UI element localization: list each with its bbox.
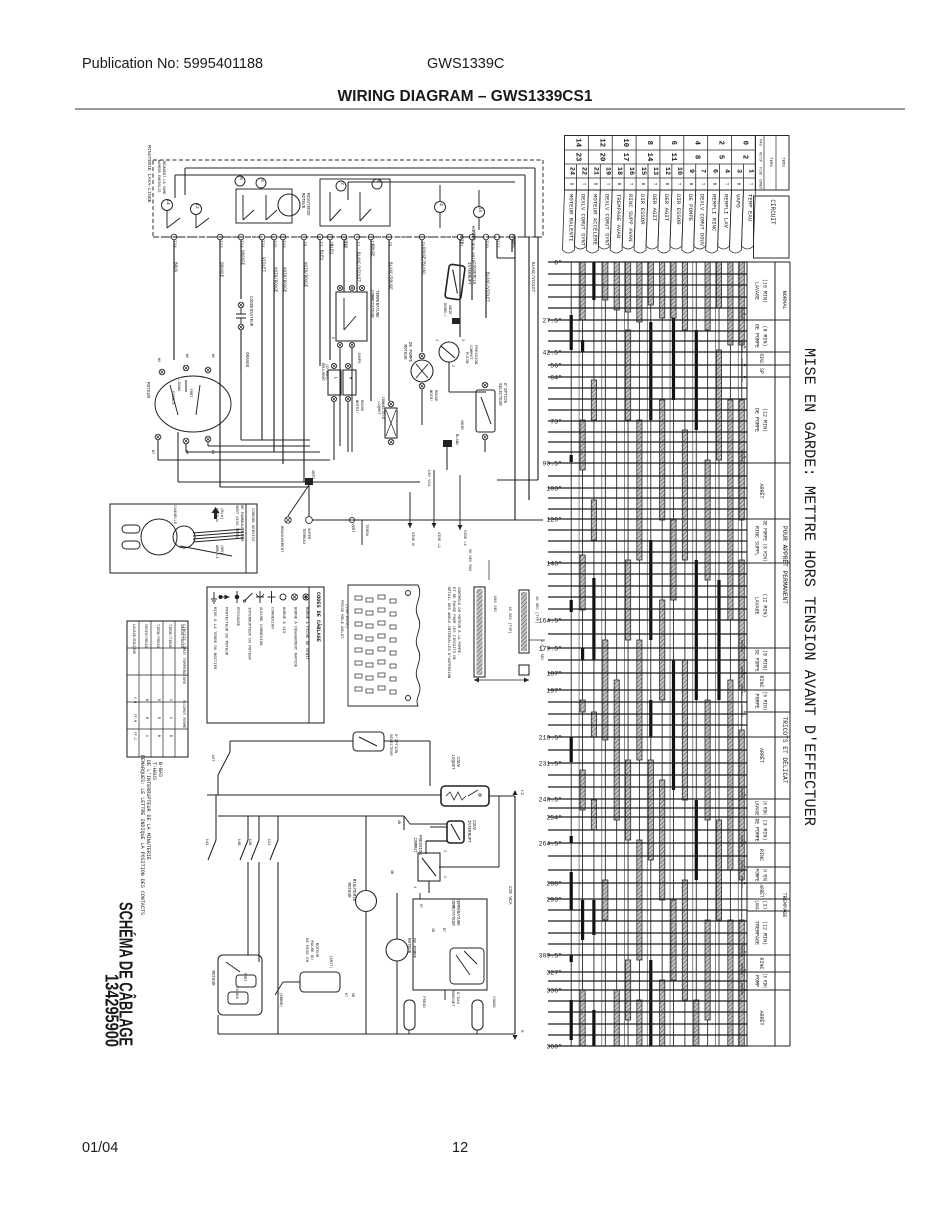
svg-text:DER AGIT: DER AGIT: [651, 194, 658, 222]
svg-text:45 SEC (TYP): 45 SEC (TYP): [507, 606, 512, 633]
svg-text:TREMPAGE: TREMPAGE: [754, 921, 760, 945]
svg-text:18: 18: [615, 167, 623, 175]
svg-text:73″: 73″: [550, 419, 562, 426]
svg-text:12B: 12B: [247, 839, 251, 847]
svg-text:309.5″: 309.5″: [539, 953, 563, 960]
svg-text:W9: W9: [156, 358, 160, 362]
svg-text:H: H: [348, 377, 354, 380]
svg-text:MOTEUR: MOTEUR: [314, 943, 318, 958]
svg-text:12: 12: [452, 1140, 468, 1156]
svg-text:LOQUET: LOQUET: [376, 401, 380, 415]
svg-text:CONNEXION: CONNEXION: [270, 607, 274, 629]
svg-text:JUMPS: JUMPS: [356, 352, 360, 364]
svg-text:231.5″: 231.5″: [539, 761, 563, 768]
svg-text:TERRA: TERRA: [364, 524, 368, 537]
svg-text:MOTEUR ACCÉLÉRÉ: MOTEUR ACCÉLÉRÉ: [591, 194, 598, 246]
svg-text:CORDON SERVICE: CORDON SERVICE: [250, 508, 254, 542]
svg-text:NOIR: NOIR: [471, 230, 475, 241]
svg-text:VIDE N: VIDE N: [410, 532, 414, 546]
svg-text:VIOLET: VIOLET: [261, 257, 265, 273]
svg-text:L: L: [333, 377, 339, 380]
svg-text:GWS1339C: GWS1339C: [427, 56, 504, 72]
svg-text:WIRING DIAGRAM – GWS1339CS1: WIRING DIAGRAM – GWS1339CS1: [338, 88, 593, 105]
svg-text:CONDENSATEUR: CONDENSATEUR: [248, 296, 252, 327]
svg-text:JNDANENT LA GAME: JNDANENT LA GAME: [161, 160, 165, 195]
svg-text:ARRÊT: ARRÊT: [758, 885, 765, 898]
svg-text:121: 121: [266, 839, 270, 847]
svg-text:REMPLI LAV: REMPLI LAV: [723, 194, 730, 229]
svg-text:P: P: [744, 363, 747, 369]
svg-text:DE PANNEAU SUPER: DE PANNEAU SUPER: [239, 505, 243, 542]
svg-text:ORANGE: ORANGE: [244, 352, 248, 368]
svg-text:4: 4: [723, 169, 731, 173]
svg-text:REMARQUES: LE LETTRE INDIQUE L: REMARQUES: LE LETTRE INDIQUE LA POSITION…: [139, 755, 145, 915]
svg-text:CONTRÔLE DU MOTEUR À LA POMPE.: CONTRÔLE DU MOTEUR À LA POMPE.: [456, 587, 461, 655]
svg-text:DOREL/: DOREL/: [442, 303, 447, 317]
svg-text:PLEIN: PLEIN: [464, 352, 468, 363]
svg-text:TEMS: TEMS: [768, 157, 772, 167]
svg-text:22: 22: [579, 167, 587, 175]
svg-text:P: P: [744, 689, 747, 695]
svg-text:COMMUTATEUR: COMMUTATEUR: [369, 290, 373, 318]
svg-text:14B: 14B: [236, 839, 240, 847]
svg-text:DEXLV COMUT SYNT: DEXLV COMUT SYNT: [579, 194, 586, 247]
svg-text:P: P: [744, 968, 747, 974]
svg-text:W5: W5: [210, 354, 214, 358]
svg-text:DE POMPE (8 MIN): DE POMPE (8 MIN): [762, 521, 768, 562]
svg-text:PRESSION: PRESSION: [473, 345, 477, 365]
svg-text:CHAUD: CHAUD: [491, 996, 495, 1008]
svg-text:P: P: [744, 710, 747, 716]
svg-text:FAIBLE: FAIBLE: [234, 987, 238, 999]
svg-text:1: 1: [746, 169, 754, 173]
svg-text:POMP: POMP: [754, 975, 760, 987]
svg-text:MOTEUR: MOTEUR: [300, 193, 304, 209]
svg-text:218.5″: 218.5″: [539, 735, 563, 742]
svg-text:POUR APPRÊT PERMANENT: POUR APPRÊT PERMANENT: [781, 526, 788, 604]
svg-text:COMMUTATEUR: COMMUTATEUR: [450, 898, 454, 926]
svg-text:VAPO: VAPO: [734, 194, 741, 208]
svg-text:COMMUT: COMMUT: [468, 345, 472, 360]
svg-text:ARRÊT: ARRÊT: [758, 484, 765, 499]
svg-text:6: 6: [669, 141, 677, 145]
svg-text:NOIR/: NOIR/: [428, 390, 433, 402]
svg-text:187″: 187″: [546, 671, 562, 678]
svg-text:107: 107: [210, 755, 214, 762]
svg-text:8: 8: [238, 177, 244, 180]
svg-text:REMPLI RINC: REMPLI RINC: [711, 194, 718, 232]
svg-text:BLANC/ROUGE: BLANC/ROUGE: [388, 262, 393, 290]
svg-text:Y-H: Y-H: [132, 697, 136, 703]
svg-text:RINC SUPPL: RINC SUPPL: [754, 526, 760, 556]
svg-text:BLANC/VIOLET: BLANC/VIOLET: [485, 272, 490, 303]
svg-text:LOQUET: LOQUET: [450, 754, 454, 770]
svg-text:42.5″: 42.5″: [542, 350, 562, 357]
svg-text:1: 1: [434, 339, 438, 341]
svg-text:(15 MIN): (15 MIN): [762, 279, 768, 303]
svg-text:P: P: [744, 865, 747, 871]
svg-text:BRUN: BRUN: [173, 262, 177, 273]
svg-text:NOIR: NOIR: [343, 238, 347, 249]
svg-text:TERREAU: TERREAU: [301, 528, 305, 545]
svg-text:D: D: [156, 699, 160, 701]
svg-text:264.5″: 264.5″: [539, 841, 563, 848]
svg-text:DEXLV COMUT SYNT: DEXLV COMUT SYNT: [603, 194, 610, 247]
svg-text:ROUGE: ROUGE: [359, 400, 363, 412]
svg-text:(VUE EXTR): (VUE EXTR): [344, 604, 349, 628]
svg-text:DE POMPE: DE POMPE: [754, 408, 760, 432]
svg-text:RINC: RINC: [758, 958, 764, 970]
svg-text:TRICOTS ET DÉLICAT: TRICOTS ET DÉLICAT: [781, 717, 788, 784]
svg-text:0″: 0″: [554, 260, 562, 267]
svg-text:SP: SP: [758, 368, 764, 374]
svg-text:D'OPTION: D'OPTION: [393, 734, 398, 754]
svg-text:BT: BT: [441, 928, 445, 932]
svg-text:TIÈDE/FROID: TIÈDE/FROID: [155, 624, 160, 648]
svg-text:8: 8: [645, 141, 653, 145]
svg-text:10: 10: [675, 167, 683, 175]
svg-text:327″: 327″: [546, 970, 562, 977]
svg-text:VERT: VERT: [310, 470, 314, 480]
svg-text:4: 4: [693, 141, 701, 146]
svg-text:6: 6: [259, 179, 265, 182]
svg-text:FIXE: FIXE: [759, 167, 763, 175]
svg-text:23: 23: [573, 153, 581, 162]
svg-text:P: P: [744, 455, 747, 461]
svg-text:2B: 2B: [430, 928, 434, 932]
svg-text:P: P: [744, 988, 747, 994]
svg-text:P: P: [744, 645, 747, 651]
svg-text:179.5″: 179.5″: [539, 646, 563, 653]
svg-text:16: 16: [477, 207, 481, 213]
svg-text:120″: 120″: [546, 517, 562, 524]
svg-text:FORT: FORT: [242, 973, 246, 982]
svg-text:TREMPAGE AVAN: TREMPAGE AVAN: [615, 194, 622, 238]
svg-text:PAG: PAG: [758, 139, 762, 145]
svg-text:180 SEC: 180 SEC: [492, 596, 496, 613]
svg-text:B-BAS: B-BAS: [157, 762, 163, 777]
svg-text:120 VCA: 120 VCA: [507, 886, 513, 905]
svg-text:90.5″: 90.5″: [542, 461, 562, 468]
svg-text:DER AGIT: DER AGIT: [663, 194, 670, 222]
svg-text:ROUGE/BLANC: ROUGE/BLANC: [421, 247, 426, 275]
svg-text:(12 MIN): (12 MIN): [762, 921, 768, 945]
svg-text:NOIR: NOIR: [511, 234, 515, 245]
svg-text:BORNE À VIS: BORNE À VIS: [281, 607, 286, 634]
svg-text:PRESSION: PRESSION: [417, 835, 421, 856]
svg-text:D: D: [168, 735, 172, 737]
svg-text:MOTEUR: MOTEUR: [145, 382, 151, 399]
svg-text:BLEU: BLEU: [329, 244, 333, 255]
svg-text:(12 MIN): (12 MIN): [762, 594, 768, 618]
svg-text:20: 20: [597, 153, 605, 162]
svg-text:MISE À LA TERRE DU BOITIER: MISE À LA TERRE DU BOITIER: [212, 607, 217, 670]
svg-text:DE POMPE: DE POMPE: [407, 342, 411, 363]
svg-text:2: 2: [442, 876, 446, 878]
svg-text:(8 MIN): (8 MIN): [762, 801, 768, 816]
svg-text:TEMS: TEMS: [781, 157, 785, 167]
svg-text:FROID/FROID: FROID/FROID: [143, 624, 148, 648]
svg-text:12: 12: [194, 203, 200, 209]
svg-text:W6: W6: [184, 354, 188, 358]
svg-text:ARRÊT: ARRÊT: [758, 1011, 765, 1026]
svg-text:360″: 360″: [546, 1044, 562, 1051]
svg-text:248.5″: 248.5″: [539, 797, 563, 804]
svg-text:NORMAL: NORMAL: [781, 291, 787, 310]
svg-text:COUV: COUV: [455, 757, 459, 768]
svg-text:17: 17: [621, 153, 629, 162]
svg-text:MOTEUR: MOTEUR: [346, 882, 350, 898]
svg-text:130 VCA: 130 VCA: [426, 470, 430, 487]
svg-text:MINUTERIE: MINUTERIE: [305, 193, 309, 216]
svg-text:293″: 293″: [546, 897, 562, 904]
svg-text:30 SEC MAX: 30 SEC MAX: [467, 549, 471, 573]
svg-text:P: P: [744, 345, 747, 351]
svg-text:(12 MIN): (12 MIN): [762, 408, 768, 432]
svg-text:56″: 56″: [550, 363, 562, 370]
svg-text:134295900: 134295900: [102, 974, 122, 1047]
svg-text:COUVERCLE: COUVERCLE: [471, 262, 475, 285]
svg-text:164.5″: 164.5″: [539, 618, 563, 625]
svg-text:BLANC: BLANC: [454, 434, 458, 446]
svg-text:TEMP EAU: TEMP EAU: [746, 194, 753, 221]
svg-text:(8 MIN): (8 MIN): [762, 326, 768, 347]
svg-text:FORT: FORT: [188, 388, 192, 398]
svg-text:9: 9: [687, 169, 695, 173]
svg-text:RINC SUPP AVAN: RINC SUPP AVAN: [627, 194, 634, 242]
svg-text:(6 MIN): (6 MIN): [762, 692, 768, 711]
svg-text:SÉLECTEUR: SÉLECTEUR: [388, 734, 393, 756]
svg-text:ROBINET: ROBINET: [450, 990, 454, 1007]
svg-text:LAVAGE: LAVAGE: [754, 597, 760, 615]
svg-text:DE POMPE: DE POMPE: [754, 819, 760, 842]
svg-text:BORNE À FICHE DE VENIT: BORNE À FICHE DE VENIT: [304, 607, 309, 660]
svg-text:14: 14: [573, 138, 581, 147]
svg-text:8: 8: [693, 155, 701, 159]
svg-text:TIÈDE/TIÈDE: TIÈDE/TIÈDE: [167, 624, 172, 648]
svg-text:DE POMPE: DE POMPE: [754, 650, 760, 672]
svg-text:5: 5: [717, 155, 725, 159]
svg-text:LAVA: LAVA: [754, 901, 760, 910]
svg-text:LAVAGE: LAVAGE: [754, 801, 760, 816]
svg-text:COUV: COUV: [471, 820, 475, 831]
svg-text:24: 24: [567, 167, 575, 175]
svg-text:LOVAN: LOVAN: [176, 379, 180, 390]
svg-text:288″: 288″: [546, 881, 562, 888]
svg-text:197″: 197″: [546, 688, 562, 695]
svg-text:(6 MIN): (6 MIN): [762, 974, 768, 989]
svg-text:ROUGE: ROUGE: [370, 244, 374, 257]
svg-text:BLANC/VIOLET: BLANC/VIOLET: [530, 262, 535, 293]
svg-text:6B: 6B: [350, 993, 354, 997]
svg-text:NOIR: NOIR: [459, 234, 463, 245]
svg-text:14: 14: [165, 199, 171, 205]
svg-text:DE POMPE: DE POMPE: [754, 324, 760, 348]
svg-text:(D'EAU): (D'EAU): [324, 364, 329, 380]
svg-text:BORNE À DÉGAGEMENT RAPIDE: BORNE À DÉGAGEMENT RAPIDE: [293, 607, 298, 668]
svg-text:254″: 254″: [546, 815, 562, 822]
svg-text:12: 12: [663, 167, 671, 175]
svg-text:14: 14: [645, 153, 653, 162]
svg-text:NOIR: NOIR: [447, 305, 451, 315]
svg-text:ORANGE: ORANGE: [240, 250, 244, 266]
svg-text:21: 21: [591, 167, 599, 175]
svg-text:MOTEUR: MOTEUR: [210, 970, 214, 986]
svg-text:RINC: RINC: [758, 849, 764, 861]
svg-text:3: 3: [734, 169, 742, 173]
svg-text:D: D: [156, 717, 160, 719]
svg-text:VIDE L1: VIDE L1: [436, 532, 440, 549]
svg-text:143″: 143″: [546, 561, 562, 568]
svg-text:27.5″: 27.5″: [542, 318, 562, 325]
svg-text:BRANCHEMENT: BRANCHEMENT: [279, 526, 283, 553]
svg-text:MOTEUR RALENTI: MOTEUR RALENTI: [567, 194, 574, 242]
svg-text:P: P: [744, 881, 747, 887]
svg-text:SELECTEUR: SELECTEUR: [497, 383, 501, 406]
svg-text:MACHE DU: MACHE DU: [309, 940, 313, 960]
svg-text:NOTRI/: NOTRI/: [354, 400, 359, 414]
svg-text:16: 16: [627, 167, 635, 175]
svg-text:VERT: VERT: [350, 523, 354, 533]
svg-text:CHAUD/FROID: CHAUD/FROID: [179, 624, 184, 648]
svg-text:KT: KT: [343, 993, 347, 997]
svg-text:2: 2: [717, 141, 725, 145]
svg-text:POMPE: POMPE: [754, 694, 760, 709]
svg-text:141: 141: [204, 839, 208, 847]
svg-text:DIR ESSOR: DIR ESSOR: [675, 194, 682, 225]
svg-text:RINC: RINC: [758, 676, 764, 688]
svg-text:NOIR: NOIR: [459, 420, 463, 430]
svg-text:1: 1: [412, 886, 416, 888]
svg-text:INTERRUPT: INTERRUPT: [466, 820, 470, 843]
svg-text:103″: 103″: [546, 486, 562, 493]
svg-text:FF-C: FF-C: [132, 732, 136, 741]
svg-text:ORANGE: ORANGE: [219, 262, 223, 278]
svg-text:LAVAGE/RINÇAGE: LAVAGE/RINÇAGE: [131, 624, 136, 654]
svg-text:COMMUT: COMMUT: [412, 837, 416, 853]
svg-text:RINC: RINC: [758, 354, 764, 364]
svg-text:L1: L1: [519, 790, 523, 796]
svg-text:VIDE L1: VIDE L1: [462, 530, 466, 547]
svg-text:PRISE MÂLE WSLNT: PRISE MÂLE WSLNT: [339, 600, 344, 639]
svg-text:POMPE: POMPE: [754, 869, 760, 882]
svg-text:ARRÊT: ARRÊT: [758, 748, 765, 763]
svg-text:DE POMPE: DE POMPE: [687, 194, 694, 222]
svg-text:ÉPISSURE: ÉPISSURE: [235, 607, 240, 627]
svg-text:336″: 336″: [546, 988, 562, 995]
svg-text:CONEX: CONEX: [759, 179, 763, 189]
svg-text:ROUGE: ROUGE: [433, 390, 437, 402]
svg-text:0T: 0T: [418, 904, 422, 908]
svg-text:2: 2: [450, 365, 454, 367]
svg-text:P: P: [744, 793, 747, 799]
svg-text:INTERRUPTEUR DU MOTEUR: INTERRUPTEUR DU MOTEUR: [247, 607, 251, 660]
svg-text:01/04: 01/04: [82, 1140, 118, 1156]
svg-text:(8 MIN): (8 MIN): [762, 650, 768, 671]
svg-text:BLEU: BLEU: [319, 250, 323, 261]
svg-text:MOTEUR: MOTEUR: [406, 938, 410, 954]
svg-text:ROULMENT: ROULMENT: [320, 363, 324, 382]
svg-text:W7: W7: [150, 450, 154, 454]
svg-text:2: 2: [740, 155, 748, 159]
svg-text:NOIR/ROUGE: NOIR/ROUGE: [282, 267, 287, 293]
svg-text:DÉTAIL DES ANGLE-INTERVALLES D: DÉTAIL DES ANGLE-INTERVALLES D'ASPERSION: [446, 587, 451, 678]
svg-text:CANNELLE: CANNELLE: [172, 505, 176, 525]
svg-text:19: 19: [603, 167, 611, 175]
svg-text:P: P: [744, 312, 747, 318]
svg-text:NOIR/ROUGE: NOIR/ROUGE: [303, 262, 308, 288]
svg-text:DEXLV COMUT DOUV: DEXLV COMUT DOUV: [699, 194, 706, 247]
svg-text:LAVAGE: LAVAGE: [754, 282, 760, 300]
svg-text:ET DE PAUSE POUR LES CIRCUITS: ET DE PAUSE POUR LES CIRCUITS DE: [451, 587, 455, 661]
svg-text:T-HAUS: T-HAUS: [151, 762, 157, 780]
svg-text:0: 0: [375, 180, 381, 183]
svg-text:AUCUNE CONNEXION: AUCUNE CONNEXION: [258, 607, 262, 646]
svg-text:CODES DE CÂBLAGE: CODES DE CÂBLAGE: [315, 592, 322, 642]
svg-text:11: 11: [669, 153, 677, 162]
svg-text:CIRCUIT: CIRCUIT: [769, 199, 776, 225]
svg-text:(EBBOR): (EBBOR): [278, 992, 283, 1007]
svg-text:MISE EN GARDE: METTRE HORS TEN: MISE EN GARDE: METTRE HORS TENSION AVANT…: [800, 348, 818, 826]
svg-text:(ARIT): (ARIT): [328, 956, 333, 969]
svg-text:TREMPAGE: TREMPAGE: [781, 893, 787, 918]
svg-text:64″: 64″: [550, 375, 562, 382]
svg-text:15: 15: [639, 167, 647, 175]
svg-text:PROTECTEUR DU MOTEUR: PROTECTEUR DU MOTEUR: [224, 607, 228, 656]
svg-text:FROID: FROID: [421, 996, 425, 1008]
svg-text:DIR ESSOR: DIR ESSOR: [639, 194, 646, 225]
svg-text:MINUTERIE: MINUTERIE: [351, 879, 355, 902]
svg-text:(3): (3): [762, 901, 768, 910]
svg-text:D'EAU: D'EAU: [455, 992, 460, 1005]
svg-text:TEMPERATURE: TEMPERATURE: [374, 290, 378, 318]
svg-text:TEMPÉRATURE: TEMPÉRATURE: [455, 898, 460, 926]
svg-text:(NO): (NO): [219, 545, 224, 554]
svg-text:WRB L1: WRB L1: [214, 545, 218, 559]
svg-text:P: P: [744, 375, 747, 381]
svg-text:(BLA): (BLA): [219, 508, 224, 519]
svg-text:4: 4: [438, 203, 444, 206]
svg-text:10: 10: [621, 138, 629, 147]
svg-text:3: 3: [460, 339, 464, 341]
svg-text:7: 7: [699, 169, 707, 173]
svg-text:P: P: [744, 840, 747, 846]
svg-text:(3 MIN): (3 MIN): [762, 820, 768, 841]
svg-text:13: 13: [651, 167, 659, 175]
svg-text:NOIR/ROUGE: NOIR/ROUGE: [273, 267, 278, 293]
svg-text:BLANC/VIOLET: BLANC/VIOLET: [356, 252, 361, 283]
svg-text:D'OPTION: D'OPTION: [502, 383, 507, 404]
svg-text:0: 0: [740, 141, 748, 145]
svg-text:FF-M: FF-M: [132, 714, 136, 723]
svg-text:ACTIP: ACTIP: [759, 152, 763, 162]
svg-text:X=COMUT FERMÉ: X=COMUT FERMÉ: [181, 700, 186, 728]
svg-text:MOTEUR: MOTEUR: [402, 344, 406, 360]
svg-text:Publication No: 5995401188: Publication No: 5995401188: [82, 56, 263, 72]
svg-text:(6 MIN): (6 MIN): [762, 869, 768, 882]
svg-text:P: P: [744, 950, 747, 956]
svg-text:P: P: [744, 671, 747, 677]
svg-text:12: 12: [597, 138, 605, 147]
svg-text:3: 3: [442, 850, 446, 852]
svg-text:CONNECTELE: CONNECTELE: [380, 397, 384, 421]
svg-text:SUPER: SUPER: [306, 528, 310, 540]
svg-text:6: 6: [711, 169, 719, 173]
svg-text:NAMERS ENERGLIS: NAMERS ENERGLIS: [156, 160, 160, 192]
svg-text:VERT VISS TERRA: VERT VISS TERRA: [234, 505, 238, 540]
svg-text:INTERRUPT: INTERRUPT: [466, 262, 470, 285]
svg-text:DE MISE EN: DE MISE EN: [304, 938, 308, 963]
